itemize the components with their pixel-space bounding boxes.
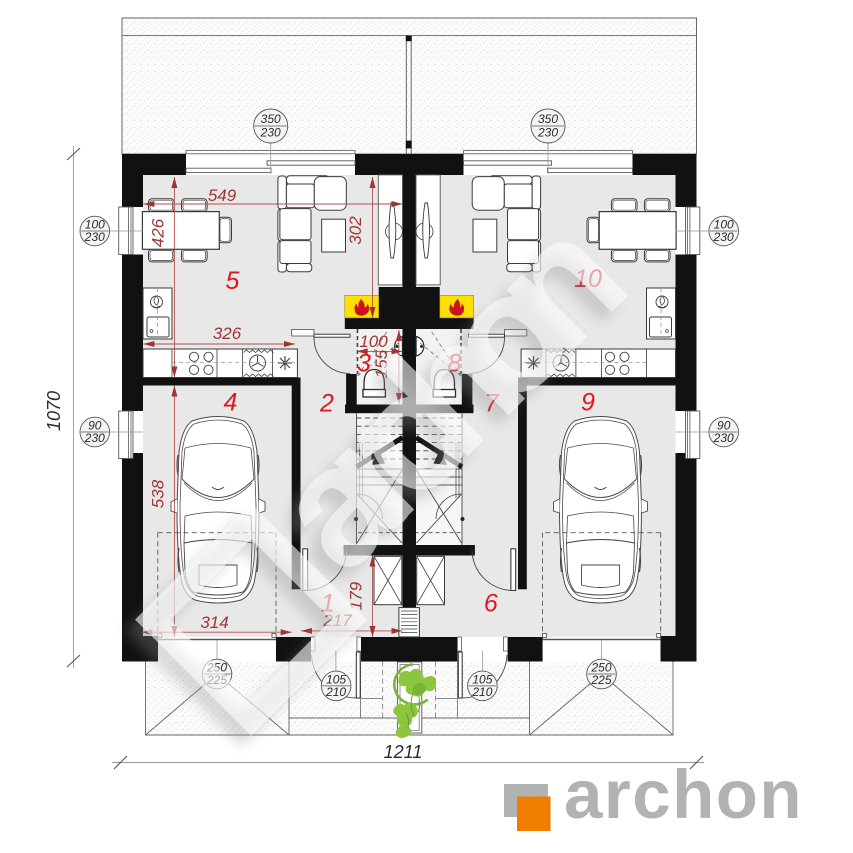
svg-text:230: 230: [260, 126, 281, 140]
svg-text:426: 426: [149, 218, 168, 247]
svg-text:210: 210: [471, 685, 492, 699]
svg-text:302: 302: [346, 216, 365, 245]
svg-text:1070: 1070: [44, 391, 64, 431]
svg-text:1211: 1211: [384, 742, 423, 762]
svg-text:326: 326: [213, 324, 242, 343]
svg-text:230: 230: [713, 230, 734, 244]
svg-text:350: 350: [538, 112, 558, 126]
svg-text:4: 4: [224, 389, 238, 417]
svg-text:230: 230: [84, 230, 105, 244]
svg-text:314: 314: [200, 613, 228, 632]
svg-text:230: 230: [84, 431, 105, 445]
svg-text:538: 538: [149, 479, 168, 508]
svg-text:archon: archon: [564, 756, 803, 833]
svg-text:230: 230: [537, 126, 558, 140]
svg-text:5: 5: [226, 267, 240, 295]
svg-text:350: 350: [261, 112, 281, 126]
svg-text:210: 210: [325, 685, 346, 699]
svg-text:230: 230: [713, 431, 734, 445]
svg-text:549: 549: [208, 186, 237, 205]
svg-text:225: 225: [590, 673, 611, 687]
svg-text:6: 6: [484, 590, 498, 618]
